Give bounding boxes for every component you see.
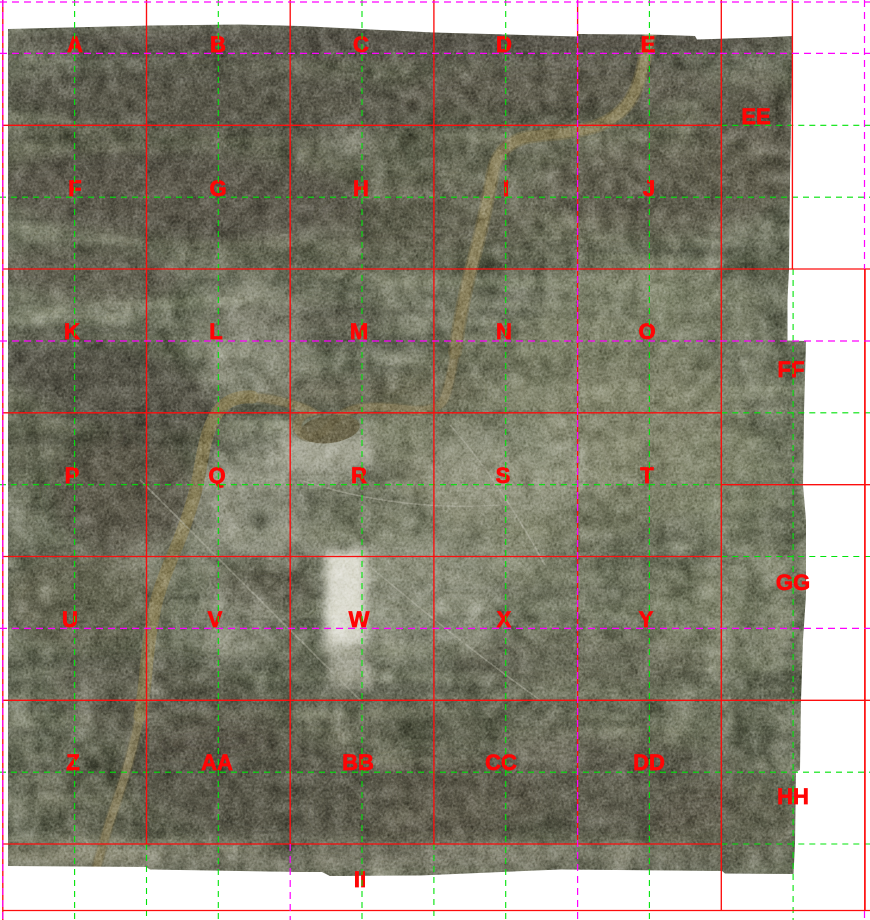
svg-text:Z: Z <box>66 750 79 775</box>
svg-text:BB: BB <box>342 750 374 775</box>
svg-text:AA: AA <box>201 750 233 775</box>
svg-text:N: N <box>496 319 512 344</box>
svg-text:L: L <box>209 319 222 344</box>
svg-text:CC: CC <box>485 750 517 775</box>
svg-text:O: O <box>638 319 655 344</box>
svg-text:II: II <box>354 867 366 892</box>
svg-text:FF: FF <box>778 357 805 382</box>
svg-text:M: M <box>350 319 368 344</box>
svg-text:K: K <box>64 319 80 344</box>
